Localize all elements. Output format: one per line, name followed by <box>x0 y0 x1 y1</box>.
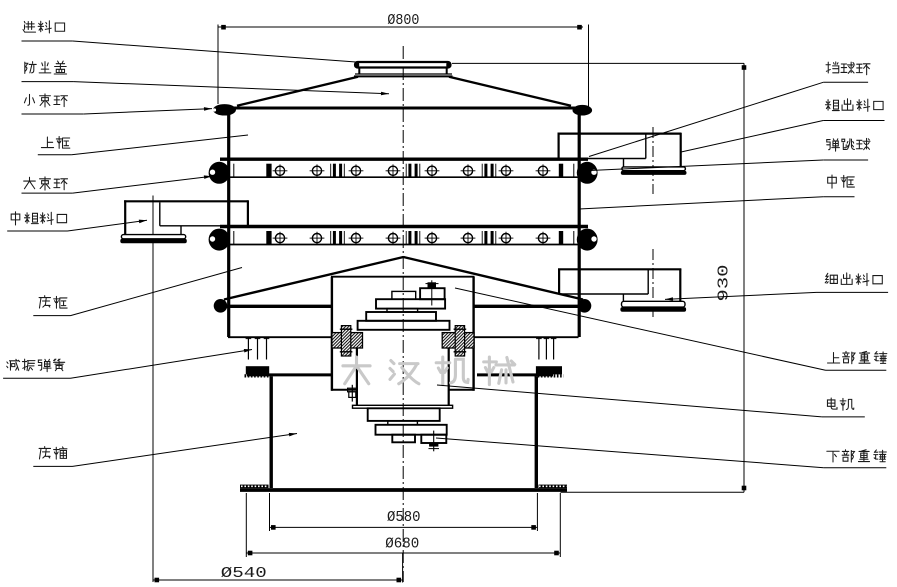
svg-text:Ø680: Ø680 <box>385 537 419 553</box>
svg-text:Ø800: Ø800 <box>387 13 419 29</box>
svg-text:Ø540: Ø540 <box>221 566 267 582</box>
svg-text:Ø580: Ø580 <box>387 510 421 526</box>
